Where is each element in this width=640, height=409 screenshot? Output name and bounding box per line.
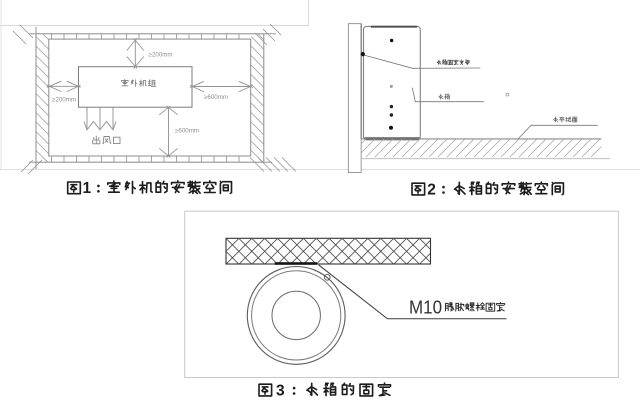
svg-text:≥600mm: ≥600mm: [204, 94, 228, 101]
svg-text:≥200mm: ≥200mm: [149, 51, 173, 58]
svg-text:1: 1: [83, 180, 92, 197]
svg-text:≥200mm: ≥200mm: [52, 96, 76, 103]
svg-text:≥600mm: ≥600mm: [175, 128, 199, 135]
svg-text:2: 2: [427, 181, 436, 198]
svg-text:M10: M10: [409, 298, 442, 318]
svg-text:3: 3: [276, 382, 285, 399]
